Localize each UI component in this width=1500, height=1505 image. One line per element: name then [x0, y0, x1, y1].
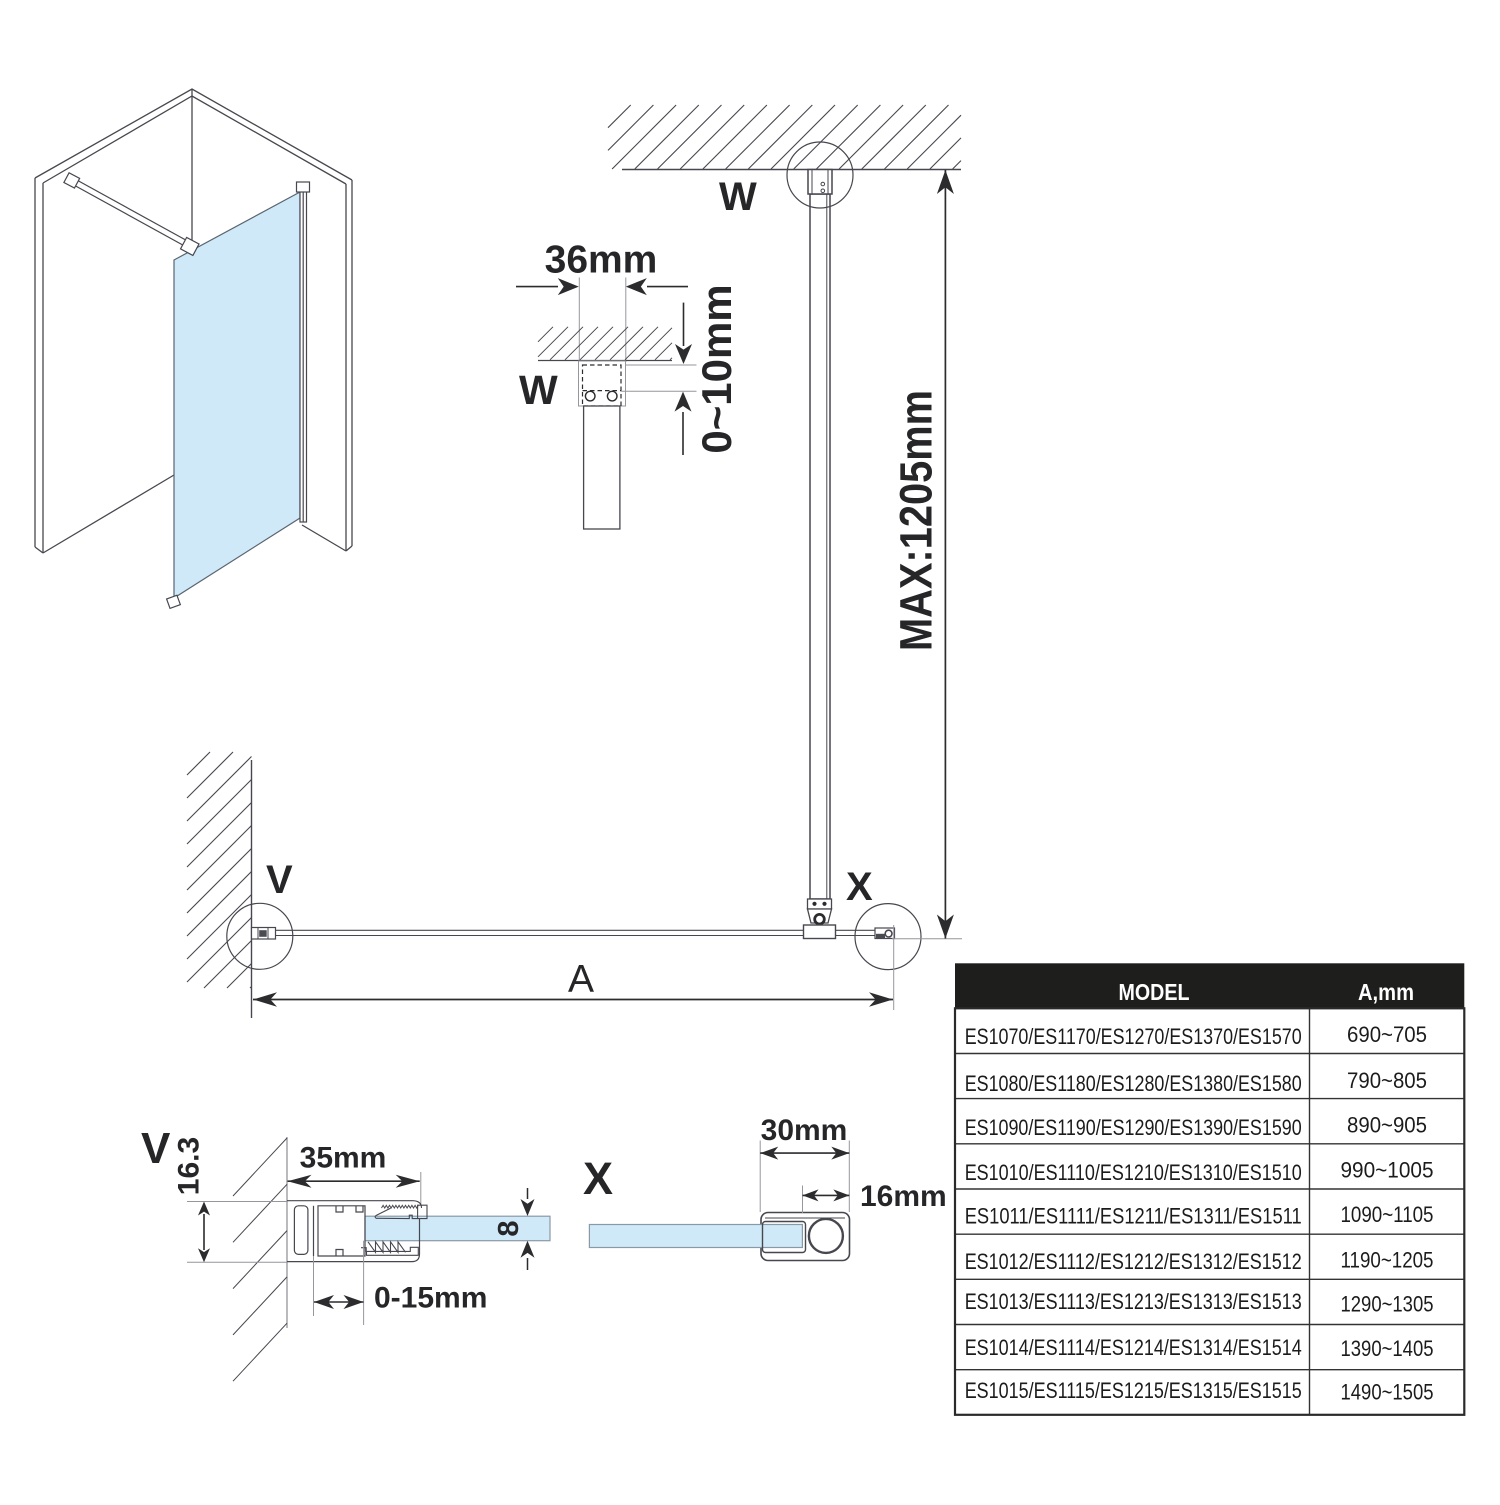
svg-text:1490~1505: 1490~1505	[1341, 1380, 1434, 1405]
svg-text:ES1010/ES1110/ES1210/ES1310/ES: ES1010/ES1110/ES1210/ES1310/ES1510	[965, 1160, 1302, 1185]
svg-text:690~705: 690~705	[1347, 1022, 1427, 1047]
svg-text:0~10mm: 0~10mm	[693, 284, 740, 453]
svg-text:V: V	[141, 1124, 171, 1173]
svg-text:990~1005: 990~1005	[1341, 1157, 1434, 1182]
svg-text:V: V	[266, 858, 293, 902]
svg-text:ES1011/ES1111/ES1211/ES1311/ES: ES1011/ES1111/ES1211/ES1311/ES1511	[965, 1204, 1302, 1229]
svg-text:30mm: 30mm	[761, 1114, 848, 1147]
svg-text:1390~1405: 1390~1405	[1341, 1336, 1434, 1361]
svg-text:W: W	[519, 367, 558, 413]
svg-text:ES1015/ES1115/ES1215/ES1315/ES: ES1015/ES1115/ES1215/ES1315/ES1515	[965, 1378, 1302, 1403]
svg-text:790~805: 790~805	[1347, 1068, 1427, 1093]
svg-text:X: X	[583, 1153, 613, 1204]
svg-text:1290~1305: 1290~1305	[1341, 1291, 1434, 1316]
svg-text:35mm: 35mm	[300, 1142, 387, 1175]
svg-text:16mm: 16mm	[860, 1180, 947, 1213]
svg-text:8: 8	[493, 1221, 525, 1237]
svg-text:MODEL: MODEL	[1119, 979, 1190, 1005]
svg-text:16.3: 16.3	[173, 1137, 206, 1195]
svg-text:890~905: 890~905	[1347, 1113, 1427, 1138]
svg-text:MAX:1205mm: MAX:1205mm	[891, 390, 942, 651]
svg-text:ES1080/ES1180/ES1280/ES1380/ES: ES1080/ES1180/ES1280/ES1380/ES1580	[965, 1071, 1302, 1096]
svg-text:X: X	[846, 865, 873, 909]
svg-text:ES1090/ES1190/ES1290/ES1390/ES: ES1090/ES1190/ES1290/ES1390/ES1590	[965, 1115, 1302, 1140]
svg-text:1190~1205: 1190~1205	[1341, 1248, 1434, 1273]
svg-text:ES1014/ES1114/ES1214/ES1314/ES: ES1014/ES1114/ES1214/ES1314/ES1514	[965, 1335, 1302, 1360]
svg-text:ES1013/ES1113/ES1213/ES1313/ES: ES1013/ES1113/ES1213/ES1313/ES1513	[965, 1289, 1302, 1314]
svg-text:1090~1105: 1090~1105	[1341, 1202, 1434, 1227]
svg-text:ES1012/ES1112/ES1212/ES1312/ES: ES1012/ES1112/ES1212/ES1312/ES1512	[965, 1249, 1302, 1274]
svg-text:0-15mm: 0-15mm	[374, 1282, 487, 1315]
svg-text:A,mm: A,mm	[1358, 979, 1414, 1005]
svg-text:ES1070/ES1170/ES1270/ES1370/ES: ES1070/ES1170/ES1270/ES1370/ES1570	[965, 1024, 1302, 1049]
svg-text:A: A	[568, 958, 594, 1001]
svg-text:36mm: 36mm	[545, 239, 658, 282]
svg-text:W: W	[719, 175, 757, 219]
